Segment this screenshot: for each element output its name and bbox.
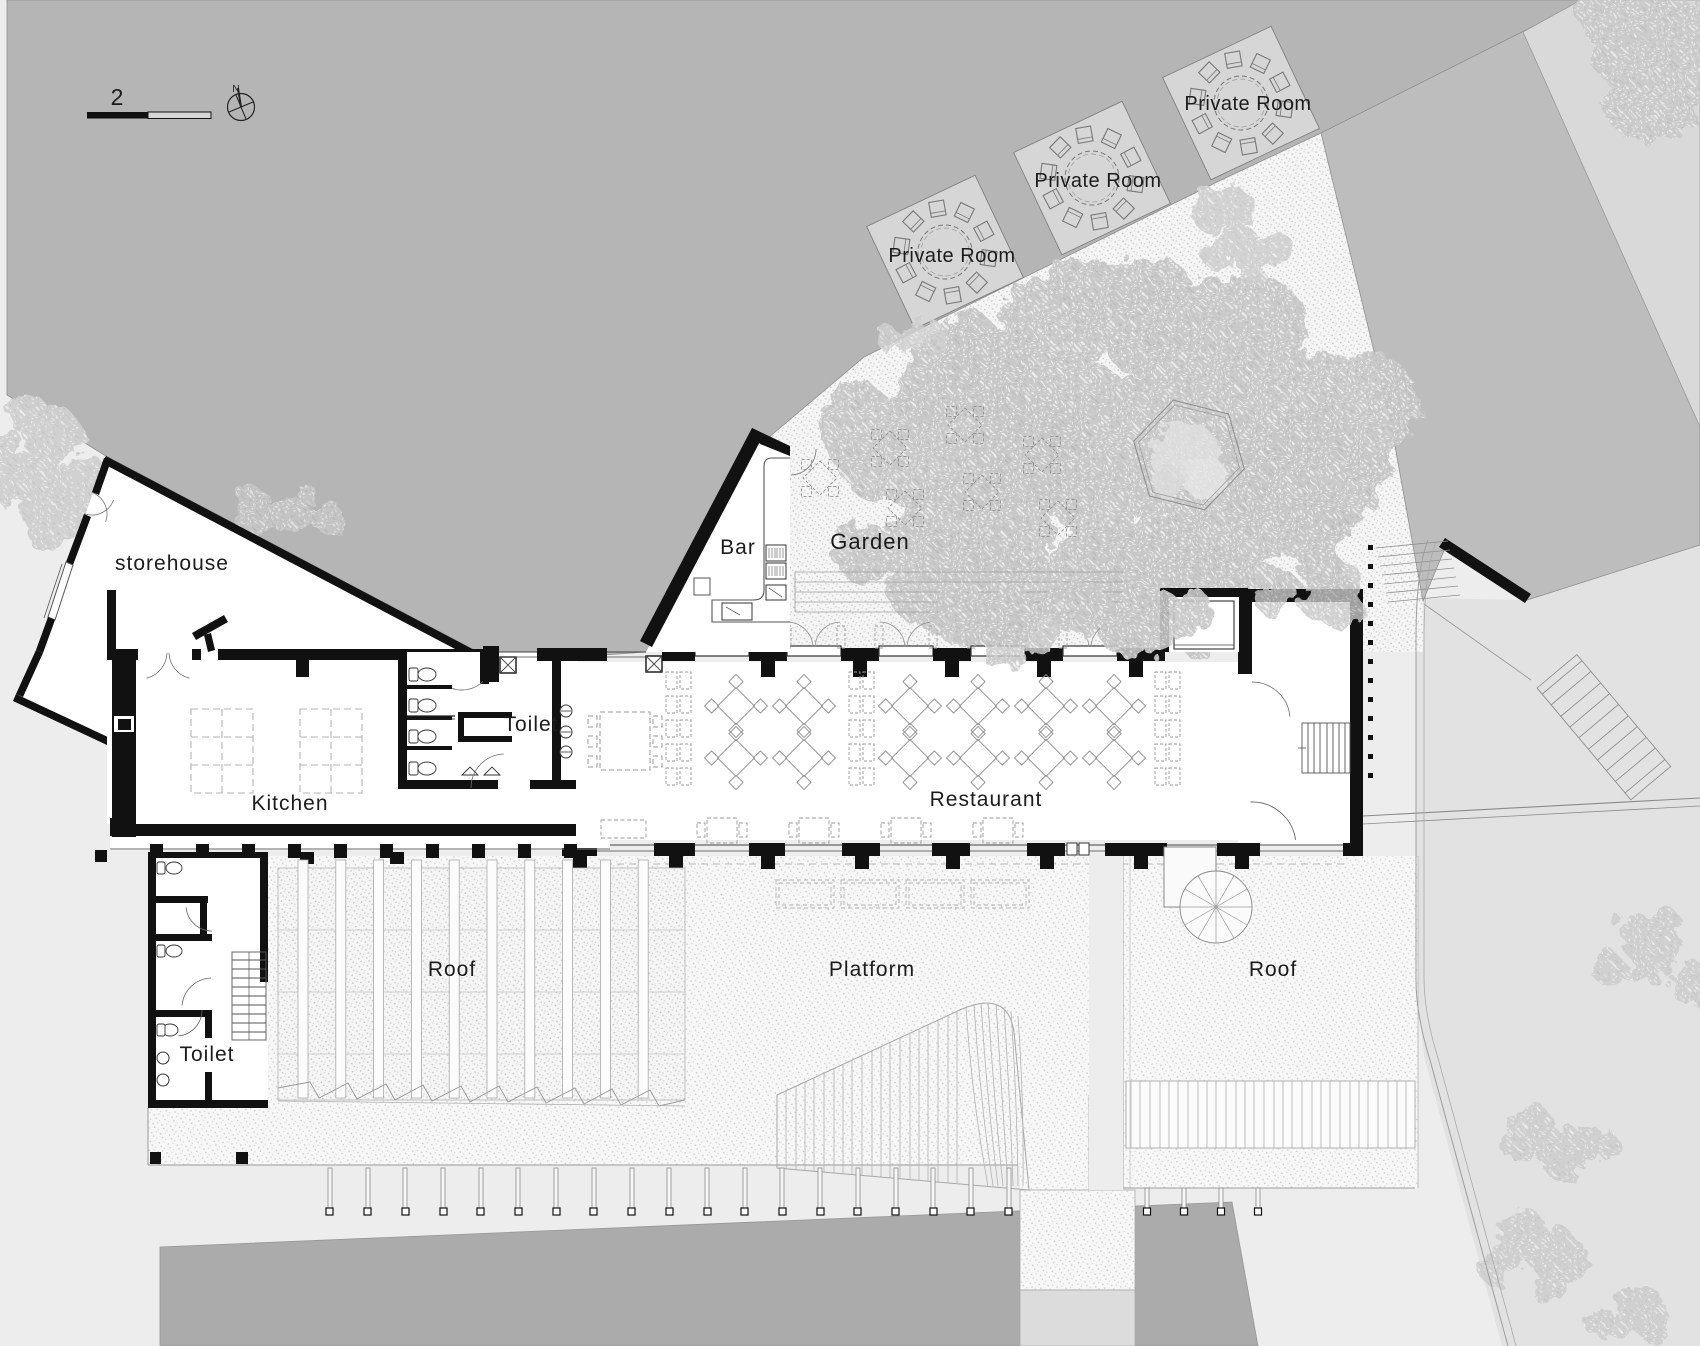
svg-text:Private Room: Private Room	[1034, 170, 1161, 192]
svg-text:storehouse: storehouse	[115, 552, 229, 575]
svg-text:Private Room: Private Room	[1184, 93, 1311, 115]
svg-text:Kitchen: Kitchen	[251, 792, 328, 815]
svg-text:Toilet: Toilet	[179, 1043, 234, 1066]
svg-text:N: N	[232, 84, 239, 95]
svg-text:Toilet: Toilet	[503, 713, 558, 736]
svg-text:Private Room: Private Room	[888, 245, 1015, 267]
svg-text:2: 2	[111, 84, 124, 110]
svg-text:Garden: Garden	[830, 529, 909, 554]
svg-text:Restaurant: Restaurant	[930, 788, 1043, 811]
svg-text:Bar: Bar	[720, 536, 756, 559]
svg-text:Roof: Roof	[1249, 958, 1297, 981]
svg-text:Platform: Platform	[829, 958, 915, 981]
svg-text:Roof: Roof	[428, 958, 476, 981]
